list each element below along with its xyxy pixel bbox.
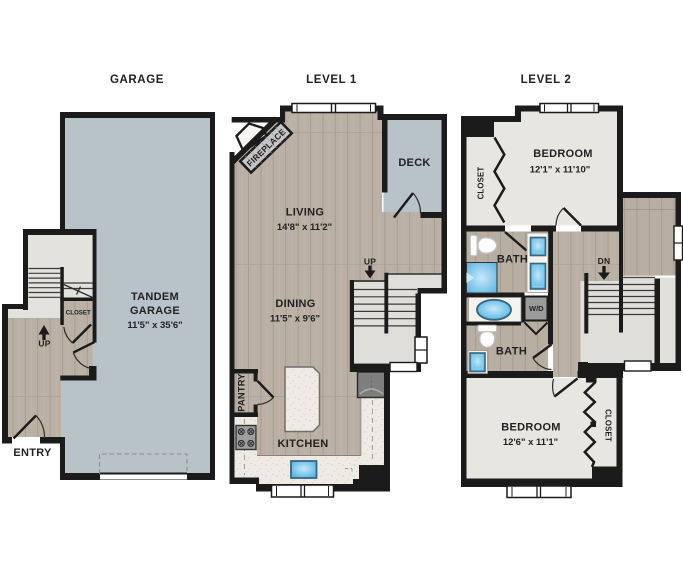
svg-text:GARAGE: GARAGE bbox=[130, 305, 180, 317]
svg-text:UP: UP bbox=[38, 339, 50, 349]
svg-text:LEVEL 2: LEVEL 2 bbox=[521, 74, 572, 86]
svg-text:BATH: BATH bbox=[497, 254, 528, 266]
svg-text:DN: DN bbox=[598, 256, 611, 266]
svg-text:LEVEL 1: LEVEL 1 bbox=[306, 74, 357, 86]
svg-text:LIVING: LIVING bbox=[286, 207, 324, 219]
svg-text:12'6" x 11'1": 12'6" x 11'1" bbox=[503, 437, 558, 448]
svg-text:BEDROOM: BEDROOM bbox=[501, 422, 561, 434]
svg-text:PANTRY: PANTRY bbox=[237, 373, 247, 412]
svg-text:W/D: W/D bbox=[529, 304, 544, 313]
svg-text:DECK: DECK bbox=[398, 157, 430, 169]
svg-text:GARAGE: GARAGE bbox=[110, 74, 164, 86]
svg-text:11'5" x 9'6": 11'5" x 9'6" bbox=[270, 314, 320, 325]
svg-text:14'8" x 11'2": 14'8" x 11'2" bbox=[277, 222, 332, 233]
svg-text:11'5" x 35'6": 11'5" x 35'6" bbox=[127, 320, 182, 331]
svg-text:CLOSET: CLOSET bbox=[66, 310, 91, 317]
svg-text:TANDEM: TANDEM bbox=[131, 291, 179, 303]
svg-text:ENTRY: ENTRY bbox=[13, 447, 52, 459]
svg-text:UP: UP bbox=[364, 257, 376, 267]
svg-text:BEDROOM: BEDROOM bbox=[533, 148, 593, 160]
svg-text:CLOSET: CLOSET bbox=[477, 167, 486, 200]
svg-text:BATH: BATH bbox=[496, 346, 527, 358]
svg-text:DINING: DINING bbox=[275, 298, 315, 310]
svg-text:CLOSET: CLOSET bbox=[604, 409, 613, 442]
svg-text:12'1" x 11'10": 12'1" x 11'10" bbox=[530, 165, 591, 176]
svg-text:KITCHEN: KITCHEN bbox=[278, 438, 329, 450]
